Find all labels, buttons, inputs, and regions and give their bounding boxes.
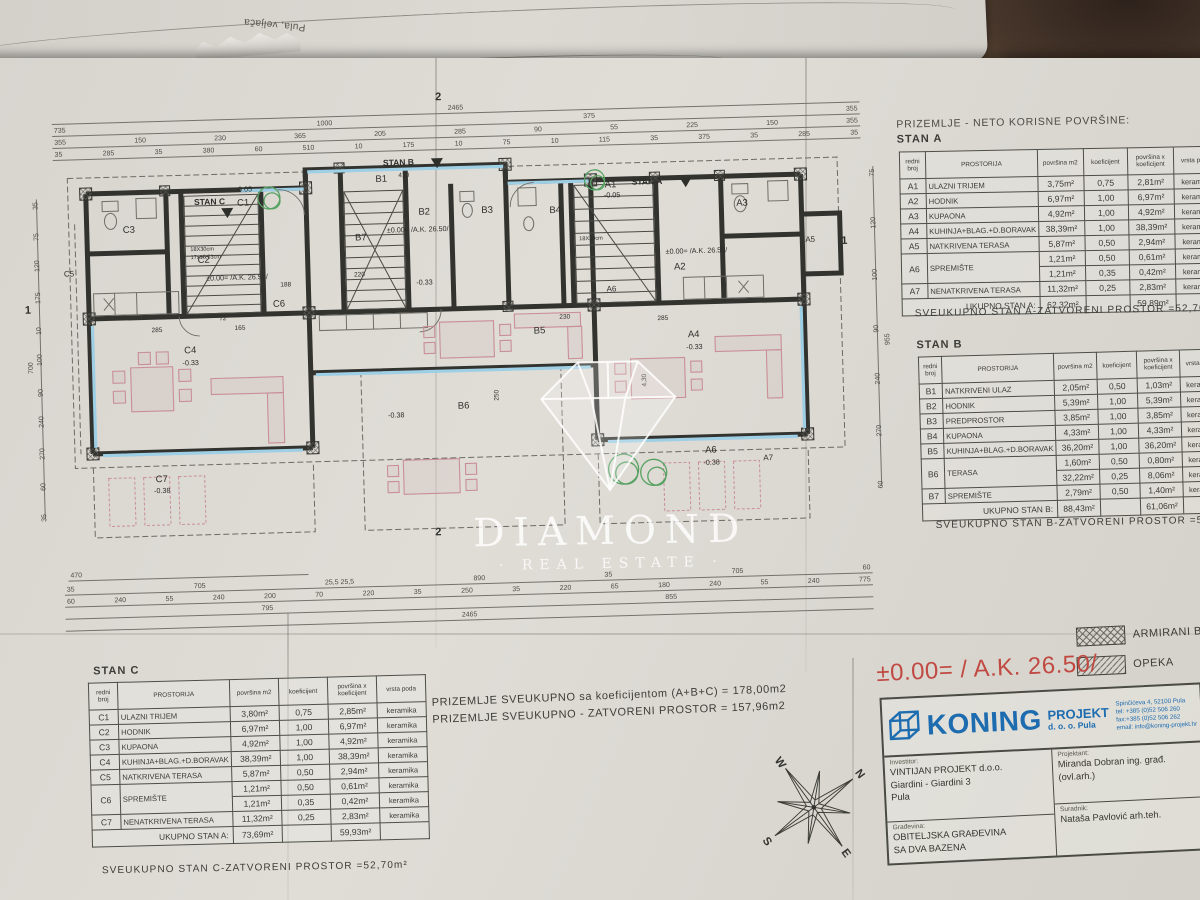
table-cell: keramika bbox=[377, 702, 426, 718]
dim-label: 60 bbox=[253, 145, 265, 156]
table-cell: 38,39m² bbox=[231, 750, 280, 766]
dim-label: 35 bbox=[153, 148, 165, 159]
stan-c-label: STAN C bbox=[194, 196, 225, 207]
stan-c-note: SVEUKUPNO STAN C-ZATVORENI PROSTOR =52,7… bbox=[102, 860, 408, 877]
room-label: B3 bbox=[481, 205, 493, 216]
company-contact: Spinčićeva 4, 52100 Pula tel: +385 (0)52… bbox=[1115, 697, 1197, 733]
dim-label: 120 bbox=[34, 259, 42, 272]
dimension-chain-left: 357512017510100902402706035 bbox=[30, 199, 52, 519]
table-cell: 0,42m² bbox=[330, 793, 379, 809]
table-cell: 3,75m² bbox=[1038, 176, 1084, 192]
elevation-value: -0.05 bbox=[604, 190, 621, 199]
dim-label: 100 bbox=[872, 267, 880, 280]
table-cell: keramika bbox=[1174, 218, 1200, 234]
dim-label: 175 bbox=[401, 141, 417, 152]
table-cell: keramika bbox=[1174, 203, 1200, 219]
dim-label: 240 bbox=[211, 593, 227, 604]
investor-cell: Investitor: VINTIJAN PROJEKT d.o.o. Giar… bbox=[884, 750, 1054, 823]
legend-armirani-label: ARMIRANI B bbox=[1132, 625, 1200, 640]
column-header: površina m2 bbox=[1053, 352, 1097, 380]
elevation-value: -0.33 bbox=[182, 358, 199, 367]
table-cell: 1,40m² bbox=[1140, 482, 1183, 498]
table-cell: keramika bbox=[1180, 376, 1200, 392]
column-header: površina m2 bbox=[229, 678, 279, 706]
table-cell: 4,92m² bbox=[1038, 206, 1084, 222]
dim-label: 470 bbox=[68, 571, 84, 582]
dim-label: 285 bbox=[101, 149, 117, 160]
room-label: A6 bbox=[606, 284, 617, 293]
dim-label: 240 bbox=[38, 415, 46, 428]
dim-label: 90 bbox=[873, 319, 881, 332]
dimension-chain-right: 751201009024027060 bbox=[866, 166, 888, 486]
room-label: A6 bbox=[705, 445, 717, 456]
dim-label: 25,5 25,5 bbox=[323, 578, 356, 590]
room-label: A3 bbox=[736, 198, 748, 209]
inline-dim: 285 bbox=[151, 327, 162, 334]
dim-label: 285 bbox=[796, 130, 812, 141]
table-cell: 1,21m² bbox=[1039, 251, 1085, 267]
dim-label: 10 bbox=[353, 142, 365, 153]
table-cell: keramika bbox=[1181, 421, 1200, 437]
table-cell: 0,80m² bbox=[1139, 452, 1182, 468]
dim-label: 90 bbox=[38, 384, 46, 397]
table-cell: B5 bbox=[921, 443, 945, 459]
table-cell: keramika bbox=[378, 762, 427, 778]
dim-label: 175 bbox=[35, 290, 43, 303]
stair-note: 17x15,53cm bbox=[190, 254, 221, 261]
dim-label: 1000 bbox=[315, 119, 335, 131]
compass-s-label: S bbox=[760, 835, 774, 849]
dim-label: 735 bbox=[52, 127, 68, 138]
column-header: koeficijent bbox=[1096, 351, 1137, 379]
dim-label: 60 bbox=[40, 477, 48, 490]
dim-label: 375 bbox=[581, 112, 597, 123]
table-cell: B4 bbox=[920, 428, 944, 444]
table-cell: 0,50 bbox=[281, 779, 330, 795]
table-cell: B7 bbox=[922, 488, 946, 504]
table-cell: 61,06m² bbox=[1140, 497, 1183, 515]
plan-drawing: STAN C STAN B STAN A C1 C3 C2 C5 C6 bbox=[55, 143, 866, 575]
room-label: C5 bbox=[64, 269, 75, 278]
dim-label: 35 bbox=[648, 134, 660, 145]
table-cell: 4,33m² bbox=[1055, 424, 1098, 440]
legend-armirani: ARMIRANI B bbox=[1075, 621, 1200, 647]
room-label: B5 bbox=[534, 325, 546, 336]
inline-dim: 220 bbox=[354, 271, 365, 278]
table-cell: 5,87m² bbox=[1039, 236, 1085, 252]
stair-note: 18X30cm bbox=[190, 246, 214, 253]
stan-a-label: STAN A bbox=[631, 176, 662, 187]
table-cell: 6,97m² bbox=[230, 720, 279, 736]
table-cell: 36,20m² bbox=[1139, 437, 1182, 453]
elevation-value: -0.05 bbox=[236, 184, 253, 193]
table-cell: C2 bbox=[89, 724, 118, 740]
dim-label: 35 bbox=[510, 585, 522, 596]
column-header: redni broj bbox=[88, 682, 118, 710]
title-block-right-column: Projektant: Miranda Dobran ing. građ. (o… bbox=[1052, 742, 1200, 857]
room-label: A2 bbox=[674, 261, 686, 272]
table-cell: 0,61m² bbox=[330, 778, 379, 794]
table-cell: keramika bbox=[379, 792, 428, 808]
dim-label: 700 bbox=[28, 362, 35, 374]
dim-label: 65 bbox=[609, 582, 621, 593]
dim-label: 120 bbox=[870, 215, 878, 228]
table-cell: A3 bbox=[900, 209, 926, 224]
elevation-value: -0.38 bbox=[703, 457, 720, 466]
stan-a-table-title: STAN A bbox=[897, 133, 943, 146]
inline-dim: 165 bbox=[234, 325, 245, 332]
table-cell bbox=[1100, 498, 1141, 516]
dim-label: 775 bbox=[857, 575, 873, 586]
table-cell: 38,39m² bbox=[1038, 221, 1084, 237]
table-cell: 5,39m² bbox=[1138, 392, 1181, 408]
column-header: redni broj bbox=[918, 356, 942, 384]
table-cell: 2,81m² bbox=[1128, 174, 1174, 190]
column-header: površina x koeficijent bbox=[1136, 350, 1180, 378]
room-label: B4 bbox=[549, 205, 561, 216]
dim-label: 180 bbox=[656, 581, 672, 592]
dim-label: 60 bbox=[877, 475, 885, 488]
dim-label: 55 bbox=[608, 123, 620, 134]
inline-dim: 230 bbox=[559, 314, 570, 321]
title-block-body: Investitor: VINTIJAN PROJEKT d.o.o. Giar… bbox=[884, 742, 1200, 865]
table-cell: 1,00 bbox=[1084, 205, 1129, 221]
table-cell: 5,87m² bbox=[231, 765, 280, 781]
company-name2: PROJEKT bbox=[1047, 705, 1109, 721]
dim-label: 795 bbox=[259, 604, 275, 615]
table-cell: 32,22m² bbox=[1057, 469, 1100, 485]
dim-label: 205 bbox=[372, 130, 388, 141]
dim-label: 75 bbox=[33, 228, 41, 241]
table-cell: keramika bbox=[1180, 391, 1200, 407]
table-cell: keramika bbox=[1182, 451, 1200, 467]
table-cell: 0,75 bbox=[1083, 175, 1128, 191]
table-cell: 1,03m² bbox=[1137, 377, 1180, 393]
areas-heading: PRIZEMLJE - NETO KORISNE POVRŠINE: bbox=[896, 114, 1130, 130]
dim-label: 60 bbox=[65, 597, 77, 608]
elevation-zero: ±0.00= /A.K. 26.50/ bbox=[387, 224, 449, 235]
stan-a-arrow-icon bbox=[680, 177, 692, 187]
room-label: C7 bbox=[156, 474, 168, 485]
table-cell: keramika bbox=[1175, 278, 1200, 294]
dim-label: 285 bbox=[452, 127, 468, 138]
table-cell: 0,25 bbox=[282, 809, 331, 825]
table-cell: 1,00 bbox=[1099, 438, 1140, 454]
compass-e-label: E bbox=[839, 847, 853, 861]
inline-dim: 410 bbox=[398, 172, 409, 179]
staircases bbox=[184, 183, 656, 314]
room-label: A7 bbox=[763, 453, 774, 462]
column-header: koeficijent bbox=[278, 677, 328, 705]
table-cell: 1,00 bbox=[1098, 408, 1139, 424]
building-cell: Građevina: OBITELJSKA GRAĐEVINA SA DVA B… bbox=[887, 815, 1056, 859]
dim-label: 355 bbox=[52, 139, 68, 150]
designer-cell: Projektant: Miranda Dobran ing. građ. (o… bbox=[1052, 742, 1200, 804]
elevation-value: -0.33 bbox=[416, 277, 433, 286]
table-cell: 0,75 bbox=[279, 704, 328, 720]
dim-label: 55 bbox=[164, 595, 176, 606]
room-label: B1 bbox=[375, 174, 387, 185]
dim-label: 35 bbox=[32, 197, 40, 210]
table-cell: 2,94m² bbox=[329, 763, 378, 779]
dim-label: 75 bbox=[501, 138, 513, 149]
table-cell: TERASA bbox=[944, 455, 1057, 488]
table-cell: 73,69m² bbox=[233, 825, 282, 843]
table-cell: 2,85m² bbox=[328, 703, 377, 719]
table-cell: 0,35 bbox=[281, 794, 330, 810]
dim-label: 380 bbox=[201, 146, 217, 157]
column-header: vrsta poda bbox=[1179, 349, 1200, 377]
table-cell: keramika bbox=[1174, 188, 1200, 204]
table-cell: 1,00 bbox=[280, 749, 329, 765]
table-cell: 3,85m² bbox=[1138, 407, 1181, 423]
dim-label: 240 bbox=[707, 579, 723, 590]
dim-label: 35 bbox=[41, 509, 49, 522]
table-cell: keramika bbox=[1175, 263, 1200, 279]
dim-label: 10 bbox=[549, 137, 561, 148]
title-block: KONING PROJEKT d. o. o. Pula Spinčićeva … bbox=[879, 682, 1200, 865]
table-cell: A2 bbox=[900, 194, 926, 209]
table-cell: C4 bbox=[90, 754, 119, 770]
table-cell: 4,33m² bbox=[1138, 422, 1181, 438]
table-cell: 0,25 bbox=[1085, 280, 1130, 296]
table-cell: keramika bbox=[378, 732, 427, 748]
table-cell: B1 bbox=[919, 383, 943, 399]
table-cell: C1 bbox=[89, 709, 118, 725]
table-cell: C7 bbox=[92, 814, 121, 830]
table-cell: 2,94m² bbox=[1129, 234, 1175, 250]
elevation-reference-note: ±0.00= / A.K. 26.50/ bbox=[876, 650, 1098, 688]
dim-label: 70 bbox=[313, 591, 325, 602]
dim-label: 90 bbox=[532, 125, 544, 136]
dim-label: 75 bbox=[869, 163, 877, 176]
table-cell: keramika bbox=[1175, 248, 1200, 264]
dim-label: 365 bbox=[292, 132, 308, 143]
dim-label: 705 bbox=[730, 567, 746, 578]
column-header: PROSTORIJA bbox=[942, 353, 1055, 383]
table-cell: 88,43m² bbox=[1057, 499, 1100, 517]
table-cell: 0,50 bbox=[1100, 483, 1141, 499]
compass-n-label: N bbox=[852, 767, 867, 781]
column-header: koeficijent bbox=[1083, 148, 1128, 176]
table-cell: 8,06m² bbox=[1140, 467, 1183, 483]
table-cell: A6 bbox=[901, 254, 927, 284]
table-cell: 11,32m² bbox=[1040, 281, 1086, 297]
table-cell: 1,60m² bbox=[1056, 454, 1099, 470]
table-cell: keramika bbox=[1175, 233, 1200, 249]
designer-name: Miranda Dobran ing. građ. (ovl.arh.) bbox=[1058, 752, 1199, 784]
room-label: A1 bbox=[605, 179, 617, 190]
room-label: C3 bbox=[123, 225, 135, 236]
inline-dim: 4,30 bbox=[641, 373, 648, 386]
table-cell: 1,00 bbox=[1098, 423, 1139, 439]
table-cell: 4,92m² bbox=[1128, 204, 1174, 220]
dim-label: 60 bbox=[861, 563, 873, 574]
table-cell: B2 bbox=[920, 398, 944, 414]
table-cell: B3 bbox=[920, 413, 944, 429]
floor-plan: 2 2465 7351000375355 3551502303652052859… bbox=[25, 86, 900, 655]
dim-label: 955 bbox=[885, 333, 892, 345]
furniture bbox=[111, 307, 785, 503]
room-label: C4 bbox=[184, 345, 196, 356]
table-cell: 1,00 bbox=[280, 734, 329, 750]
company-name: KONING bbox=[926, 707, 1042, 738]
dim-label: 240 bbox=[112, 596, 128, 607]
table-cell: A1 bbox=[900, 179, 926, 194]
dim-label: 270 bbox=[876, 423, 884, 436]
dim-label: 55 bbox=[758, 578, 770, 589]
table-cell: 0,50 bbox=[1085, 250, 1130, 266]
table-cell: 1,00 bbox=[1084, 220, 1129, 236]
stair-note: 18X30cm bbox=[579, 236, 603, 243]
area-table-stan-a: redni brojPROSTORIJApovršina m2koeficije… bbox=[899, 146, 1200, 317]
table-cell bbox=[380, 822, 429, 840]
inline-dim: 285 bbox=[657, 315, 668, 322]
dim-label: 150 bbox=[764, 119, 780, 130]
dim-label: 890 bbox=[471, 574, 487, 585]
stan-b-label: STAN B bbox=[383, 157, 414, 168]
table-cell: A5 bbox=[901, 239, 927, 254]
table-cell: 0,35 bbox=[1085, 265, 1130, 281]
photo-of-floorplan: Pula, veljača 2 2465 7351000375355 35515… bbox=[0, 0, 1200, 900]
title-block-left-column: Investitor: VINTIJAN PROJEKT d.o.o. Giar… bbox=[884, 750, 1057, 866]
dim-label: 35 bbox=[65, 585, 77, 596]
table-cell: 0,61m² bbox=[1129, 249, 1175, 265]
room-label: B2 bbox=[418, 206, 430, 217]
dim-label: 220 bbox=[361, 589, 377, 600]
elevation-zero: ±0.00= /A.K. 26.50/ bbox=[206, 272, 268, 283]
dim-label: 270 bbox=[39, 446, 47, 459]
company-name-suffix: PROJEKT d. o. o. Pula bbox=[1047, 705, 1109, 731]
table-cell: 38,39m² bbox=[1129, 219, 1175, 235]
dim-label: 355 bbox=[844, 116, 860, 127]
table-cell: 5,39m² bbox=[1055, 394, 1098, 410]
column-header: redni broj bbox=[899, 152, 925, 179]
room-label: B6 bbox=[458, 400, 470, 411]
table-cell: 0,50 bbox=[1099, 453, 1140, 469]
table-cell: C3 bbox=[90, 739, 119, 755]
section-marker-left: 1 bbox=[25, 305, 31, 317]
dim-label: 35 bbox=[412, 588, 424, 599]
column-header: vrsta poda bbox=[376, 675, 426, 703]
table-cell: 1,00 bbox=[279, 719, 328, 735]
table-cell: 0,50 bbox=[280, 764, 329, 780]
room-label: A4 bbox=[688, 329, 700, 340]
table-cell: 2,83m² bbox=[1130, 279, 1176, 295]
table-cell: SPREMIŠTE bbox=[120, 782, 233, 815]
room-label: C1 bbox=[237, 197, 249, 208]
section-marker-top: 2 bbox=[435, 91, 441, 103]
table-cell: 59,93m² bbox=[331, 823, 380, 841]
table-cell: 1,21m² bbox=[1039, 266, 1085, 282]
table-cell: UKUPNO STAN A: bbox=[92, 827, 233, 848]
table-cell: 0,42m² bbox=[1129, 264, 1175, 280]
column-header: PROSTORIJA bbox=[117, 680, 230, 710]
dim-label: 240 bbox=[874, 371, 882, 384]
dim-label: 150 bbox=[132, 136, 148, 147]
table-cell: keramika bbox=[1182, 466, 1200, 482]
column-header: PROSTORIJA bbox=[925, 150, 1037, 179]
column-header: površina m2 bbox=[1037, 149, 1083, 177]
table-cell: 11,32m² bbox=[233, 810, 282, 826]
column-header: površina x koeficijent bbox=[327, 676, 377, 704]
elevation-value: -0.38 bbox=[154, 486, 171, 495]
table-cell: keramika bbox=[380, 807, 429, 823]
table-cell: 4,92m² bbox=[231, 735, 280, 751]
dim-label: 220 bbox=[558, 584, 574, 595]
table-cell: C6 bbox=[91, 784, 121, 815]
dim-label: 240 bbox=[806, 577, 822, 588]
room-label: B7 bbox=[355, 232, 367, 243]
elevation-zero: ±0.00= /A.K. 26.50/ bbox=[665, 245, 727, 256]
table-cell: A4 bbox=[901, 224, 927, 239]
room-label: A5 bbox=[805, 235, 816, 244]
inline-dim: 250 bbox=[493, 389, 500, 400]
table-cell: 2,05m² bbox=[1054, 379, 1097, 395]
room-label: C6 bbox=[273, 299, 285, 310]
table-cell: 38,39m² bbox=[329, 748, 378, 764]
sheet-content: 2 2465 7351000375355 3551502303652052859… bbox=[0, 47, 1200, 900]
table-cell: 4,92m² bbox=[329, 733, 378, 749]
table-cell: C5 bbox=[91, 769, 120, 785]
table-cell: B6 bbox=[921, 458, 945, 489]
dim-label: 35 bbox=[53, 151, 65, 162]
crosshatch-swatch-icon bbox=[1075, 625, 1126, 647]
table-cell bbox=[1183, 496, 1200, 514]
table-cell: SPREMIŠTE bbox=[927, 252, 1039, 284]
stan-b-table-title: STAN B bbox=[916, 338, 962, 351]
table-cell: 1,21m² bbox=[232, 780, 281, 796]
inline-dim: 188 bbox=[280, 281, 291, 288]
summary-block: PRIZEMLJE SVEUKUPNO sa koeficijentom (A+… bbox=[431, 683, 787, 731]
table-cell: 3,80m² bbox=[230, 705, 279, 721]
column-header: površina x koeficijent bbox=[1127, 147, 1173, 175]
table-cell: keramika bbox=[379, 777, 428, 793]
dim-label: 855 bbox=[663, 593, 679, 604]
table-cell: 1,00 bbox=[1084, 190, 1129, 206]
dim-label: 100 bbox=[37, 353, 45, 366]
dim-label: 2465 bbox=[446, 103, 466, 115]
table-cell: A7 bbox=[902, 284, 928, 299]
dim-label: 705 bbox=[192, 582, 208, 593]
plan-sheet: 2 2465 7351000375355 3551502303652052859… bbox=[0, 58, 1200, 900]
column-header: vrsta poda bbox=[1173, 146, 1200, 174]
table-cell: 6,97m² bbox=[1038, 191, 1084, 207]
table-cell: 0,50 bbox=[1097, 378, 1138, 394]
table-cell: keramika bbox=[378, 747, 427, 763]
elevation-value: -0.33 bbox=[686, 342, 703, 351]
dim-label: 115 bbox=[597, 135, 612, 146]
table-cell: 2,79m² bbox=[1057, 484, 1100, 500]
dim-label: 2465 bbox=[460, 610, 480, 622]
table-cell: keramika bbox=[1181, 406, 1200, 422]
table-cell: 0,25 bbox=[1099, 468, 1140, 484]
stan-c-arrow-icon bbox=[221, 208, 233, 218]
dim-label: 35 bbox=[602, 570, 614, 581]
table-cell bbox=[282, 824, 331, 842]
dim-label: 10 bbox=[36, 322, 44, 335]
dim-label: 250 bbox=[459, 586, 475, 597]
koning-cube-logo-icon bbox=[886, 707, 924, 747]
table-cell: keramika bbox=[1182, 436, 1200, 452]
dim-label: 510 bbox=[301, 144, 317, 155]
dim-label: 230 bbox=[212, 134, 228, 145]
dim-label: 375 bbox=[696, 133, 712, 144]
elevation-value: -0.38 bbox=[388, 410, 405, 419]
table-cell: 1,00 bbox=[1097, 393, 1138, 409]
area-table-stan-c: redni brojPROSTORIJApovršina m2koeficije… bbox=[88, 674, 430, 847]
compass-rose: N S E W bbox=[749, 729, 878, 887]
